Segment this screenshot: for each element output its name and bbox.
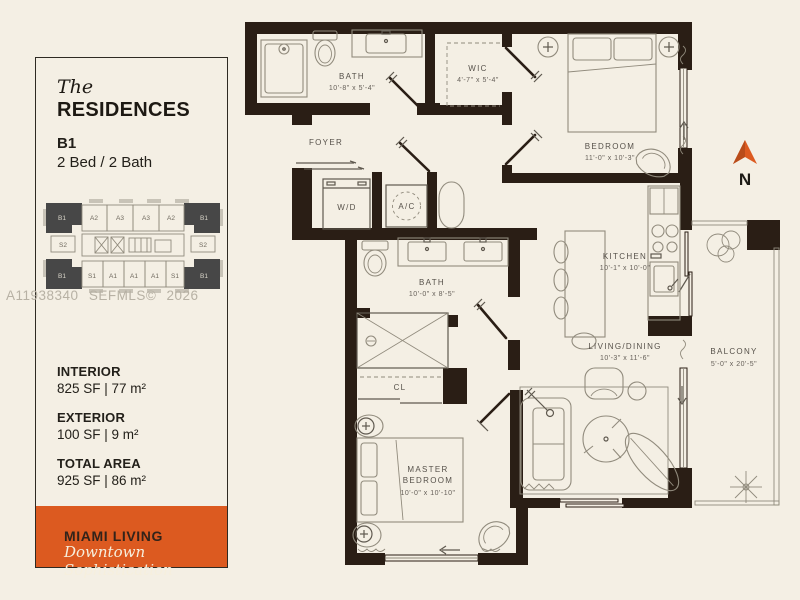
toilet-icon xyxy=(313,31,337,66)
shower-icon xyxy=(261,40,307,97)
closet-slider-cl xyxy=(358,399,442,403)
lounge-chair-icon xyxy=(617,425,687,499)
room-dims-balcony: 5'-0" x 20'-5" xyxy=(711,361,757,368)
room-label-kitchen: KITCHEN xyxy=(603,252,647,261)
room-label-master-2: BEDROOM xyxy=(403,476,453,485)
stool-icon xyxy=(554,297,568,319)
shower-icon xyxy=(357,313,448,368)
coffee-table-icon xyxy=(583,416,629,462)
nightstand-lamp-icon xyxy=(353,523,381,547)
rug xyxy=(520,387,668,494)
room-dims-kitchen: 10'-1" x 10'-0" xyxy=(600,265,651,272)
nightstand-lamp-icon xyxy=(538,37,558,57)
stool-icon xyxy=(554,269,568,291)
double-vanity-icon xyxy=(398,238,508,266)
curtain-squiggle xyxy=(358,549,500,552)
closet-rod-dashed xyxy=(447,43,500,106)
island-icon xyxy=(554,231,605,349)
showerhead-icon xyxy=(279,44,289,54)
curtain-squiggle xyxy=(681,340,686,359)
kitchen-sink-icon xyxy=(650,262,678,296)
room-label-wic: WIC xyxy=(468,64,487,73)
walls xyxy=(245,22,780,565)
door-entry xyxy=(396,137,429,171)
nightstand-lamp-icon xyxy=(355,415,383,437)
floor-lamp-icon xyxy=(525,388,554,417)
door-bath1 xyxy=(386,72,419,107)
plant-icon xyxy=(730,471,762,503)
north-label: N xyxy=(739,170,751,189)
room-dims-master: 10'-0" x 10'-10" xyxy=(401,490,456,497)
room-dims-wic: 4'-7" x 5'-4" xyxy=(457,77,499,84)
room-dims-living: 10'-3" x 11'-6" xyxy=(600,355,650,362)
room-label-bedroom: BEDROOM xyxy=(585,142,635,151)
closet-slider-wd xyxy=(296,161,364,169)
sink-icon xyxy=(352,30,422,57)
door-wic xyxy=(506,48,542,82)
room-label-cl: CL xyxy=(394,383,407,392)
balcony-slider-living xyxy=(560,499,624,507)
fridge-icon xyxy=(650,188,678,214)
chair-icon xyxy=(472,515,515,556)
entry-door-panel xyxy=(439,182,464,228)
sofa-icon xyxy=(521,398,571,490)
room-label-ac: A/C xyxy=(398,202,415,211)
room-dims-bath2: 10'-0" x 8'-5" xyxy=(409,291,455,298)
bed-icon xyxy=(568,34,656,132)
master-fixtures xyxy=(353,415,515,556)
cooktop-icon xyxy=(651,225,678,258)
north-arrow-icon: N xyxy=(733,140,757,189)
stool-icon xyxy=(554,241,568,263)
window-arrow xyxy=(440,546,460,554)
mls-watermark: A11938340 SEFMLS© 2026 xyxy=(6,288,199,303)
room-label-foyer: FOYER xyxy=(309,138,343,147)
room-label-bath1: BATH xyxy=(339,72,365,81)
living-fixtures xyxy=(520,340,687,499)
balcony-slider-kitchen xyxy=(679,232,692,316)
nightstand-lamp-icon xyxy=(659,37,679,57)
toilet-icon xyxy=(362,241,388,276)
room-label-master-1: MASTER xyxy=(407,465,448,474)
wic-fixtures xyxy=(447,43,500,106)
dining-armchair-icon xyxy=(585,368,623,399)
railing xyxy=(774,248,779,505)
side-table-icon xyxy=(628,382,646,400)
railing xyxy=(692,221,747,225)
room-dims-bedroom: 11'-0" x 10'-3" xyxy=(585,155,635,162)
room-label-balcony: BALCONY xyxy=(710,347,757,356)
door-bath2 xyxy=(474,299,506,338)
plant-icon xyxy=(707,231,740,262)
room-label-bath2: BATH xyxy=(419,278,445,287)
room-label-wd: W/D xyxy=(337,203,356,212)
bath2-fixtures xyxy=(357,238,508,368)
room-label-living: LIVING/DINING xyxy=(588,342,661,351)
railing xyxy=(695,501,779,505)
room-dims-bath1: 10'-8" x 5'-4" xyxy=(329,85,375,92)
door-master xyxy=(477,394,509,431)
door-bedroom xyxy=(506,130,542,164)
